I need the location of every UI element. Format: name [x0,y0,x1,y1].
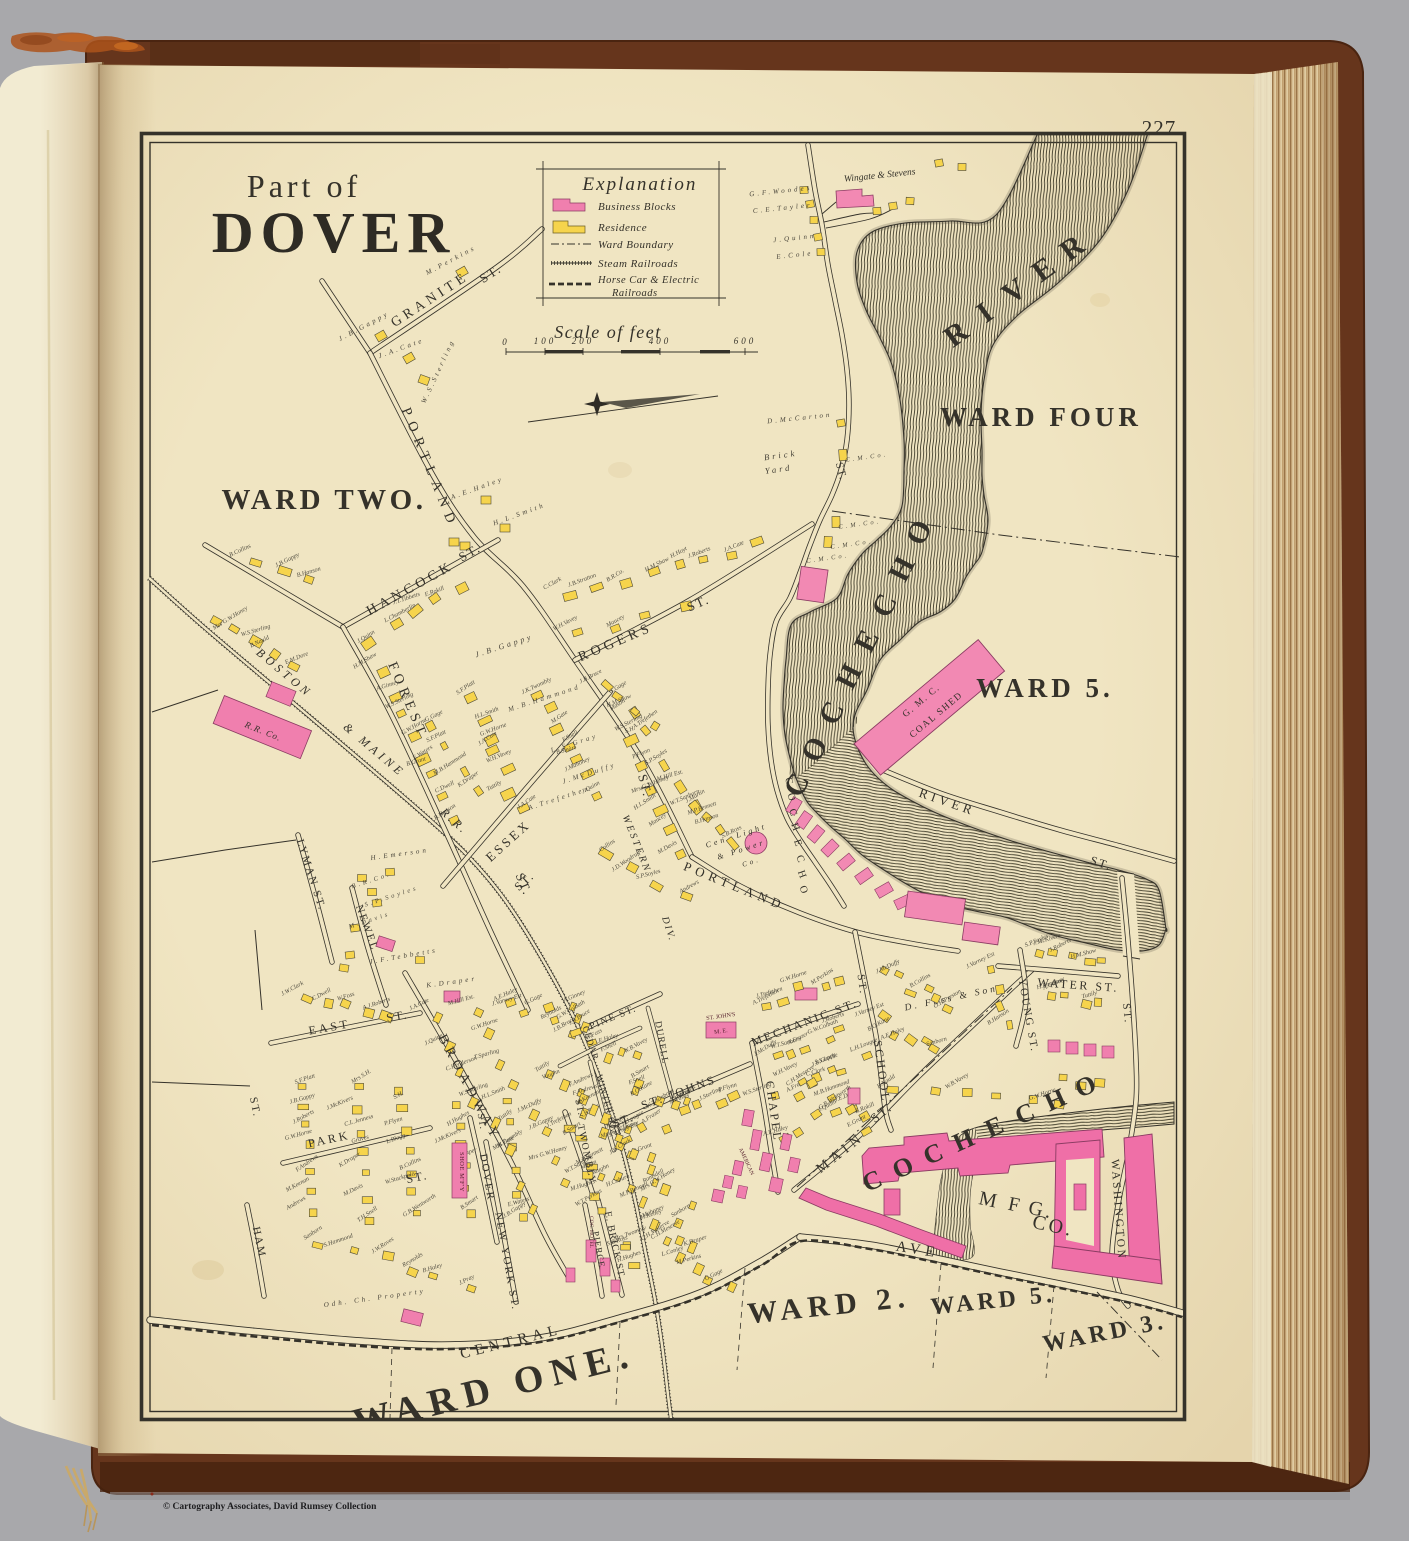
svg-text:400: 400 [649,336,672,346]
svg-text:600: 600 [734,336,757,346]
svg-text:Part of: Part of [247,168,361,204]
svg-text:SHOE M'F'Y: SHOE M'F'Y [458,1152,465,1192]
svg-text:Explanation: Explanation [582,174,698,195]
svg-text:Business Blocks: Business Blocks [598,201,676,213]
svg-text:DOVER: DOVER [212,200,456,265]
svg-text:Scale of feet: Scale of feet [554,322,661,342]
svg-text:© Cartography Associates, Davi: © Cartography Associates, David Rumsey C… [163,1501,377,1512]
svg-text:Horse Car & Electric: Horse Car & Electric [597,275,699,286]
svg-text:100: 100 [534,336,557,346]
svg-text:Ward Boundary: Ward Boundary [598,239,674,251]
svg-text:WARD TWO.: WARD TWO. [222,484,427,516]
svg-text:Residence: Residence [597,222,647,234]
svg-text:Railroads: Railroads [611,288,658,299]
svg-text:WARD 5.: WARD 5. [976,673,1114,703]
svg-text:200: 200 [572,336,595,346]
svg-text:ST.: ST. [1120,1003,1134,1025]
svg-text:Steam Railroads: Steam Railroads [598,258,678,270]
svg-text:0: 0 [502,337,510,347]
svg-text:WARD FOUR: WARD FOUR [940,402,1142,432]
